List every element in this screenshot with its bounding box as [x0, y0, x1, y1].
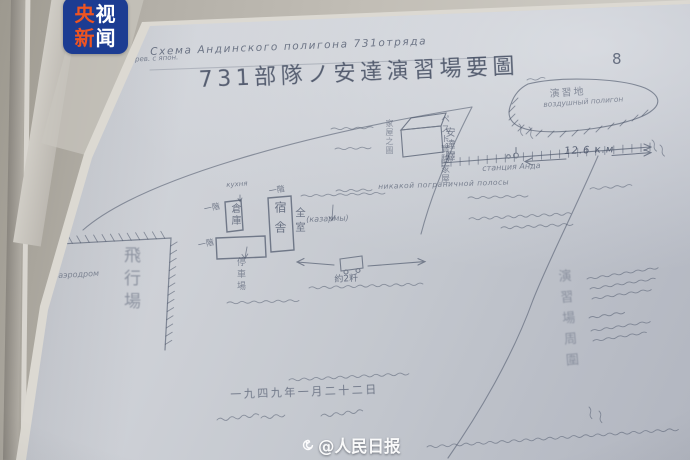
kitchen-label-ru: кухня [226, 180, 248, 189]
logo-line-2: 新闻 [75, 26, 117, 50]
airfield-fence [60, 238, 171, 350]
railway-distance-label: 12.6 к.м [564, 144, 615, 157]
cctv-news-logo: 央视 新闻 [63, 0, 128, 54]
weibo-spiral-icon [299, 437, 315, 453]
house-sketch-label: 家屋之圖 [384, 119, 395, 155]
peoples-daily-watermark: @人民日报 [299, 433, 401, 457]
parking-label: 停車場 [234, 257, 247, 293]
storehouse-label: 倉庫 [227, 203, 242, 227]
route-distance-label: 約2粁 [334, 271, 358, 285]
dormitory-label: 宿舎 [272, 201, 289, 241]
logo-line-1: 央视 [75, 2, 117, 26]
airfield-label-cn: 飛行場 [118, 246, 143, 315]
watermark-text: @人民日报 [318, 433, 401, 457]
page-number: 8 [612, 50, 622, 68]
barracks-label-ru: (казармы) [306, 214, 349, 224]
news-photo: Схема Андинского полигона 731отряда 731部… [0, 0, 690, 460]
experiment-house-label: ペスト實驗家屋 [438, 114, 451, 184]
truck-sketch [297, 256, 425, 274]
